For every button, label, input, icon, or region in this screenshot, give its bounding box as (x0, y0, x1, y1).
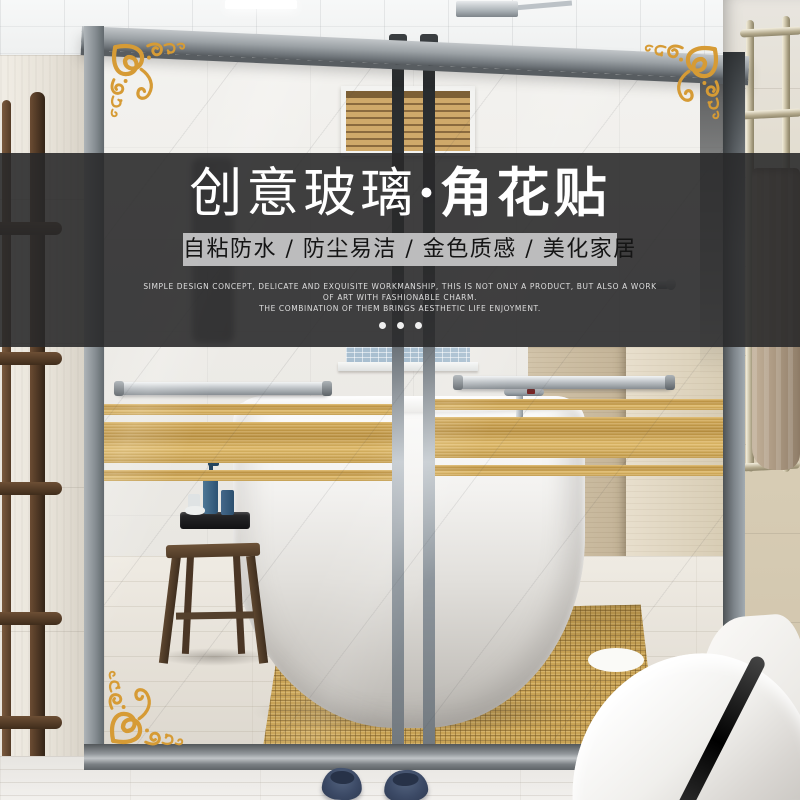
slipper-opening (330, 770, 355, 785)
faucet-red-detail (527, 389, 535, 394)
corner-ornament-top-right (642, 44, 720, 122)
ladder-rung (0, 612, 62, 625)
soap-bar (185, 506, 205, 515)
gold-stripe-band-right (433, 399, 723, 476)
description-line-1: SIMPLE DESIGN CONCEPT, DELICATE AND EXQU… (143, 281, 656, 292)
ceiling-light (225, 0, 297, 9)
ladder-rung (0, 352, 62, 365)
title-separator: · (417, 162, 439, 224)
banner-subtitle: 自粘防水 / 防尘易洁 / 金色质感 / 美化家居 (183, 233, 617, 266)
window-blinds (341, 86, 475, 156)
product-poster: 创意玻璃·角花贴 自粘防水 / 防尘易洁 / 金色质感 / 美化家居 SIMPL… (0, 0, 800, 800)
carousel-dots (379, 322, 422, 329)
frame-left-post (84, 26, 104, 756)
gold-stripe (433, 465, 723, 476)
corner-ornament-icon (112, 44, 184, 116)
slipper-opening (392, 772, 419, 787)
rain-shower-head (456, 1, 518, 17)
stool-seat (166, 543, 260, 558)
stool-rung (176, 611, 254, 619)
handle-end-cap (322, 381, 332, 396)
gold-stripe (104, 404, 395, 415)
corner-ornament-bottom-left (108, 668, 186, 746)
corner-ornament-top-left (110, 42, 188, 120)
corner-ornament-icon (110, 672, 182, 744)
carousel-dot (379, 322, 386, 329)
gold-stripe (104, 422, 395, 463)
window-sill (338, 362, 478, 371)
handle-end-cap (665, 375, 675, 390)
gold-stripe (433, 399, 723, 410)
tub-faucet (504, 388, 544, 396)
toilet-lid-edge (588, 648, 644, 672)
title-regular: 创意玻璃 (189, 163, 417, 224)
gold-stripe (104, 470, 395, 481)
door-handle-right (455, 376, 673, 389)
description-line-3: THE COMBINATION OF THEM BRINGS AESTHETIC… (143, 303, 656, 314)
carousel-dot (397, 322, 404, 329)
stool-shadow (158, 648, 270, 666)
corner-ornament-icon (646, 46, 718, 118)
ladder-rung (0, 716, 62, 729)
carousel-dot (415, 322, 422, 329)
ladder-rung (0, 482, 62, 495)
gold-stripe-band-left (104, 404, 395, 481)
description-line-2: OF ART WITH FASHIONABLE CHARM. (143, 292, 656, 303)
handle-end-cap (114, 381, 124, 396)
handle-end-cap (453, 375, 463, 390)
gold-stripe (433, 417, 723, 458)
door-handle-left (116, 382, 330, 395)
banner-title: 创意玻璃·角花贴 (189, 163, 610, 223)
blue-cup (221, 490, 234, 515)
window-lower-pane (346, 347, 470, 363)
promo-banner: 创意玻璃·角花贴 自粘防水 / 防尘易洁 / 金色质感 / 美化家居 SIMPL… (0, 153, 800, 347)
title-bold: 角花贴 (440, 162, 611, 224)
banner-description: SIMPLE DESIGN CONCEPT, DELICATE AND EXQU… (143, 281, 656, 314)
